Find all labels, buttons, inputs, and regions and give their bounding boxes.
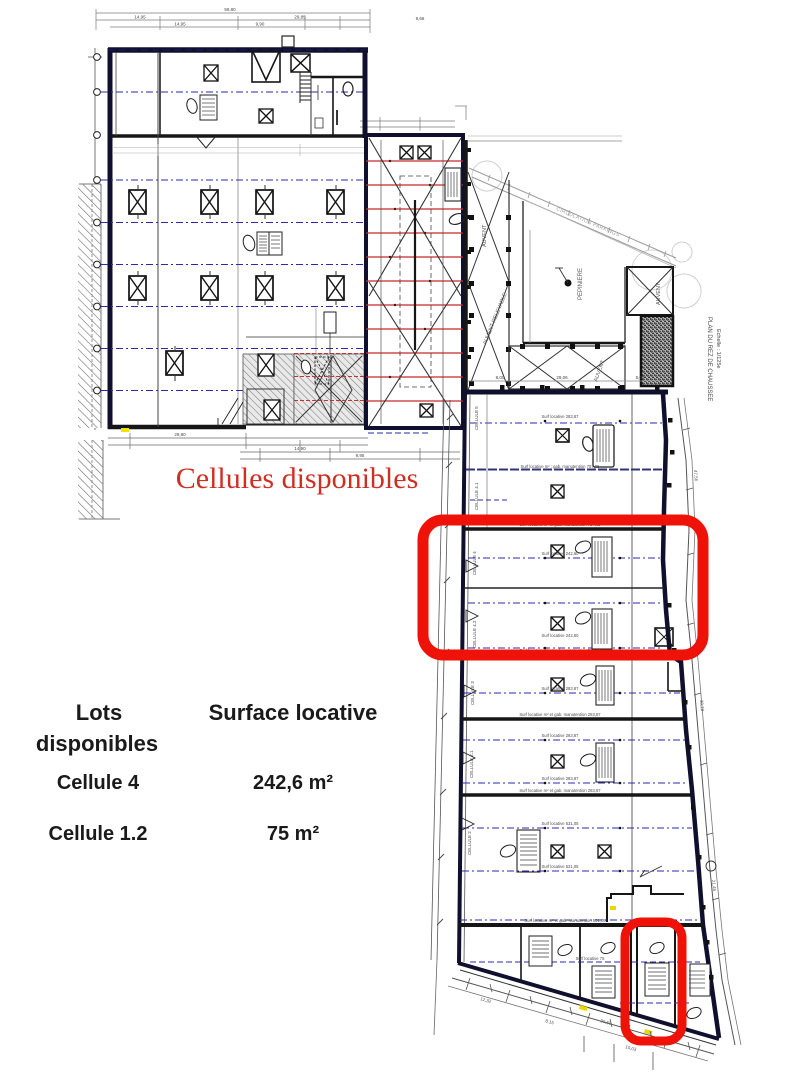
svg-text:14,95: 14,95 xyxy=(174,22,186,27)
svg-text:Surf locative m² et gab. manut: Surf locative m² et gab. manutention 283… xyxy=(519,712,601,717)
svg-text:CELLULE 4.2: CELLULE 4.2 xyxy=(472,620,477,648)
svg-text:9,90: 9,90 xyxy=(256,22,265,27)
svg-text:CELLULE 2: CELLULE 2 xyxy=(467,831,472,855)
svg-text:Cellule 1.2: Cellule 1.2 xyxy=(49,823,148,845)
svg-text:47,56: 47,56 xyxy=(693,470,699,482)
svg-text:CELLULE 3: CELLULE 3 xyxy=(470,681,475,705)
svg-text:Surf locative m² : gab. manute: Surf locative m² : gab. manutention 757,… xyxy=(521,464,601,469)
svg-text:AUVENT RELEVABLE: AUVENT RELEVABLE xyxy=(482,292,508,346)
svg-text:Surf locative 242,60: Surf locative 242,60 xyxy=(541,551,579,556)
svg-text:30,60: 30,60 xyxy=(600,1018,613,1026)
svg-text:AUVENT: AUVENT xyxy=(482,224,488,247)
svg-text:CELLULE 4.1: CELLULE 4.1 xyxy=(474,482,479,510)
svg-text:PLAN DU REZ DE CHAUSSEE: PLAN DU REZ DE CHAUSSEE xyxy=(706,317,712,401)
svg-text:CELLULE 5: CELLULE 5 xyxy=(474,406,479,430)
svg-text:Surf locative m² et gab. manut: Surf locative m² et gab. manutention 283… xyxy=(519,788,601,793)
svg-text:Surf locative 242,60: Surf locative 242,60 xyxy=(541,633,579,638)
svg-text:CIRCULATION PARKINGS: CIRCULATION PARKINGS xyxy=(555,206,621,238)
svg-text:CELLULE 4: CELLULE 4 xyxy=(472,551,477,575)
svg-text:8,00: 8,00 xyxy=(496,375,505,380)
svg-text:Surf locative m² et gab. manut: Surf locative m² et gab. manutention 531… xyxy=(524,918,606,923)
svg-text:Surf locative 283,87: Surf locative 283,87 xyxy=(541,686,579,691)
svg-text:12,32: 12,32 xyxy=(480,996,493,1004)
svg-text:Lots: Lots xyxy=(76,700,122,725)
svg-text:disponibles: disponibles xyxy=(36,731,158,756)
svg-text:Echelle : 1/125e: Echelle : 1/125e xyxy=(715,329,721,368)
svg-text:14,90: 14,90 xyxy=(294,446,306,451)
svg-text:75 m²: 75 m² xyxy=(267,823,320,845)
svg-text:10,03: 10,03 xyxy=(625,1044,638,1052)
svg-text:29,80: 29,80 xyxy=(174,432,186,437)
svg-text:9,95: 9,95 xyxy=(356,453,365,458)
svg-text:Surface locative: Surface locative xyxy=(209,700,378,725)
svg-text:29,06: 29,06 xyxy=(556,375,568,380)
svg-text:AUVENT: AUVENT xyxy=(656,282,662,305)
svg-text:Surf locative 531,05: Surf locative 531,05 xyxy=(541,864,579,869)
svg-text:38,18: 38,18 xyxy=(699,700,705,712)
svg-text:5,00: 5,00 xyxy=(636,375,645,380)
svg-text:Surf locative 531,05: Surf locative 531,05 xyxy=(541,821,579,826)
svg-text:Surf locative 283,87: Surf locative 283,87 xyxy=(541,733,579,738)
svg-text:Cellule 4: Cellule 4 xyxy=(57,772,140,794)
svg-text:Cellules disponibles: Cellules disponibles xyxy=(176,462,419,495)
svg-text:242,6 m²: 242,6 m² xyxy=(253,772,333,794)
svg-text:Surf locative 283,87: Surf locative 283,87 xyxy=(541,776,579,781)
svg-text:59,80: 59,80 xyxy=(224,7,236,12)
svg-text:AUVENT: AUVENT xyxy=(593,359,606,383)
svg-text:8,15: 8,15 xyxy=(545,1018,555,1025)
svg-text:Surf locative 75: Surf locative 75 xyxy=(576,956,606,961)
svg-text:PEPINIERE: PEPINIERE xyxy=(578,268,584,300)
svg-text:Surf locative 283,87: Surf locative 283,87 xyxy=(541,414,579,419)
svg-text:CELLULE 2.1: CELLULE 2.1 xyxy=(469,750,474,778)
svg-text:14,95: 14,95 xyxy=(134,15,146,20)
svg-text:29,85: 29,85 xyxy=(294,15,306,20)
svg-text:9,66: 9,66 xyxy=(416,16,425,21)
